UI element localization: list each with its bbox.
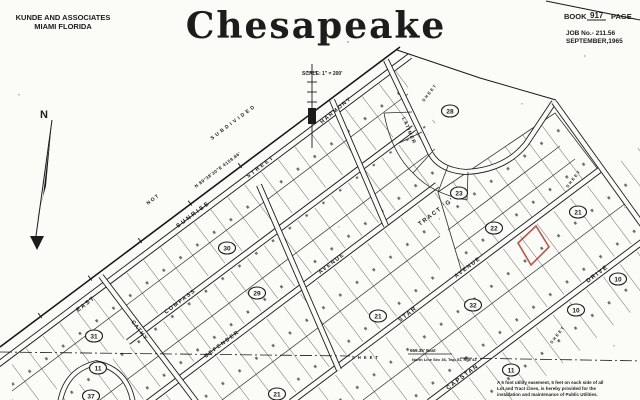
svg-text:23: 23 xyxy=(455,191,463,198)
survey-date: SEPTEMBER,1965 xyxy=(566,38,623,45)
sheet-marker: 21 xyxy=(370,310,387,322)
page-label: PAGE xyxy=(611,12,632,21)
not-subdivided-word2: SUBDIVIDED xyxy=(210,103,258,141)
svg-text:11: 11 xyxy=(508,368,515,375)
sheet-marker: 23 xyxy=(451,187,468,199)
svg-text:37: 37 xyxy=(87,394,95,400)
sheet-marker: 10 xyxy=(568,304,585,316)
job-number: JOB No.- 211.56 xyxy=(566,30,616,37)
svg-text:31: 31 xyxy=(90,334,98,341)
svg-text:22: 22 xyxy=(490,226,498,233)
sheet-word-4: SHEET xyxy=(352,355,381,360)
north-label: N xyxy=(40,109,48,121)
sheet-marker: 10 xyxy=(610,273,627,285)
sheet-marker: 37 xyxy=(83,390,100,400)
svg-text:30: 30 xyxy=(223,246,231,253)
svg-text:28: 28 xyxy=(446,109,454,116)
sheet-marker: 28 xyxy=(442,105,459,117)
book-label: BOOK xyxy=(564,12,587,21)
scale-note: SCALE: 1" = 200' xyxy=(302,71,342,77)
svg-text:21: 21 xyxy=(273,392,281,399)
svg-text:32: 32 xyxy=(469,303,477,310)
sheet-marker: 21 xyxy=(269,388,286,400)
book-number: 917 xyxy=(590,11,604,20)
sheet-marker: 30 xyxy=(219,242,236,254)
page-title: Chesapeake xyxy=(186,5,447,47)
north-arrow: N xyxy=(30,109,52,250)
sheet-marker: 11 xyxy=(90,362,107,374)
not-subdivided-word1: NOT xyxy=(146,193,162,207)
svg-text:21: 21 xyxy=(374,314,382,321)
header: KUNDE AND ASSOCIATES MIAMI FLORIDA Chesa… xyxy=(16,1,640,77)
easement-note: A 5 foot utility easement, 5 feet on eac… xyxy=(497,380,603,397)
svg-text:29: 29 xyxy=(253,291,261,298)
sheet-marker: 22 xyxy=(486,222,503,234)
svg-text:Lot and Tract Lines, is hereby: Lot and Tract Lines, is hereby provided … xyxy=(497,386,597,391)
sheet-word-1: SHEET xyxy=(421,83,438,103)
svg-text:21: 21 xyxy=(574,210,582,217)
plat-sheet: N 30 29 28 23 22 21 32 21 21 31 11 37 10… xyxy=(0,0,640,400)
svg-text:10: 10 xyxy=(614,277,622,284)
firm-name: KUNDE AND ASSOCIATES xyxy=(16,13,111,22)
north-arrowhead xyxy=(30,236,44,250)
svg-text:10: 10 xyxy=(572,308,580,315)
plat-map: N 30 29 28 23 22 21 32 21 21 31 11 37 10… xyxy=(0,0,640,400)
sheet-marker: 29 xyxy=(249,287,266,299)
sheet-marker: 32 xyxy=(465,299,482,311)
sheet-marker: 11 xyxy=(503,364,520,376)
firm-location: MIAMI FLORIDA xyxy=(34,22,92,31)
section-dim: 669.35' East xyxy=(410,348,436,353)
sheet-marker: 21 xyxy=(570,206,587,218)
sheet-marker: 31 xyxy=(86,330,103,342)
section-line-note: North Line Sec 36, Twp 51, Rge 42 xyxy=(412,357,477,362)
svg-text:installation and maintenance o: installation and maintenance of Public U… xyxy=(497,392,598,397)
svg-text:A 5 foot utility easement, 5 f: A 5 foot utility easement, 5 feet on eac… xyxy=(497,380,603,385)
svg-text:11: 11 xyxy=(95,366,102,373)
